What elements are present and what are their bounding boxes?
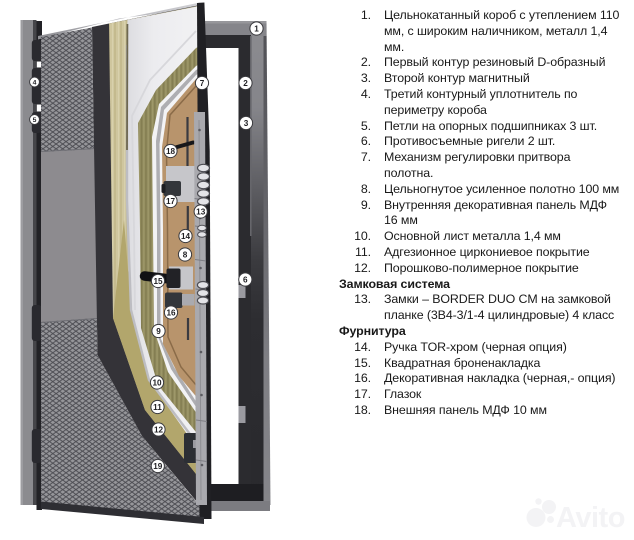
svg-text:7: 7 (200, 79, 205, 88)
svg-text:19: 19 (153, 462, 163, 471)
svg-text:4: 4 (33, 79, 37, 86)
svg-text:5: 5 (33, 117, 37, 124)
svg-text:18: 18 (166, 147, 176, 156)
svg-text:13: 13 (196, 207, 206, 216)
svg-text:14: 14 (181, 232, 191, 241)
svg-text:8: 8 (183, 250, 188, 259)
svg-text:6: 6 (243, 275, 248, 284)
svg-text:1: 1 (254, 24, 259, 33)
svg-text:12: 12 (154, 425, 164, 434)
svg-text:11: 11 (153, 403, 162, 412)
svg-text:2: 2 (243, 79, 248, 88)
svg-text:10: 10 (152, 378, 162, 387)
svg-text:16: 16 (166, 308, 176, 317)
svg-text:Avito: Avito (556, 502, 625, 534)
svg-text:3: 3 (244, 119, 249, 128)
svg-text:15: 15 (153, 277, 163, 286)
svg-text:9: 9 (156, 327, 161, 336)
svg-text:17: 17 (166, 197, 176, 206)
